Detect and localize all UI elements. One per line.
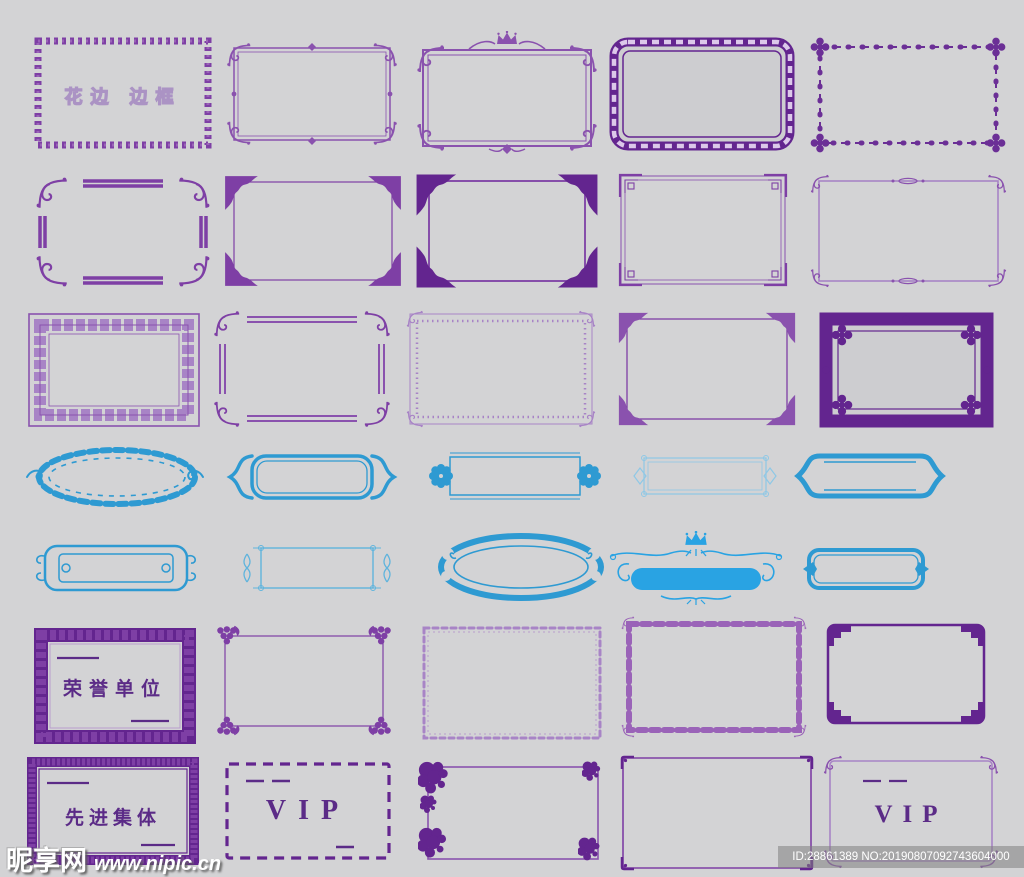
- petite-ornament-border-graphic: [807, 172, 1010, 290]
- corner-flourish-icon: [811, 175, 829, 193]
- corner-flourish-icon: [407, 311, 423, 327]
- frame-crown-ornate: [413, 30, 601, 156]
- leaf-corner-icon: [225, 176, 258, 210]
- grunge-corner-border-graphic: [414, 757, 610, 867]
- frame-dashed-vip: VIP: [218, 755, 398, 867]
- lace-border-asset-sheet: 花边 边框: [0, 0, 1024, 877]
- image-id-watermark: ID:28861389 NO:20190807092743604000: [778, 846, 1024, 868]
- frame-loop-chain: [414, 620, 610, 745]
- nipic-logo-text: 昵享网: [6, 839, 87, 877]
- cloud-scroll-plaque-graphic: [33, 536, 199, 600]
- flourish-side-banner-graphic: [233, 535, 401, 601]
- beaded-border-graphic: [404, 308, 598, 430]
- bold-bracket-banner-graphic: [794, 448, 946, 504]
- frame-label: 荣誉单位: [33, 674, 197, 701]
- meander-border-graphic: [25, 310, 203, 430]
- plaque-diamond-side: [801, 543, 931, 595]
- banner-flourish-side: [233, 535, 401, 601]
- banner-laurel-wreath: [25, 443, 205, 511]
- stepped-corner-border-graphic: [821, 620, 991, 728]
- corner-flourish-icon: [227, 43, 250, 66]
- bold-leaf-border-graphic: [414, 172, 600, 290]
- plaque-cloud-scroll: [33, 536, 199, 600]
- crown-icon: [497, 31, 517, 44]
- grape-corner-border-graphic: [209, 618, 399, 743]
- frame-beaded-border: [404, 308, 598, 430]
- fine-line-banner-graphic: [624, 445, 786, 507]
- frame-heavy-ornate: [817, 310, 996, 430]
- frame-label: VIP: [218, 795, 398, 827]
- rosette-icon: [577, 464, 601, 488]
- frame-scroll-pattern: [617, 616, 811, 738]
- dotted-floral-border-graphic: [806, 33, 1010, 157]
- frame-chain-pattern: 花边 边框: [33, 36, 213, 150]
- gapped-double-line-border-graphic: [211, 308, 393, 430]
- diamond-side-plaque-graphic: [801, 543, 931, 595]
- crown-swirl-banner-graphic: [601, 530, 791, 606]
- frame-grape-corner: [209, 618, 399, 743]
- flourish-bar-border-graphic: [33, 174, 213, 290]
- banner-bold-bracket: [794, 448, 946, 504]
- banner-crown-swirl: [601, 530, 791, 606]
- flower-cluster-icon: [811, 38, 830, 57]
- banner-curly-bracket: [222, 446, 402, 508]
- scroll-pattern-border-graphic: [617, 616, 811, 738]
- plaque-cloud-scallop-oval: [436, 532, 606, 602]
- frame-stepped-corner: [821, 620, 991, 728]
- side-leaf-icon: [244, 554, 250, 582]
- crown-border-graphic: [413, 30, 601, 156]
- frame-honor-unit: 荣誉单位: [33, 627, 197, 745]
- frame-dotted-floral: [806, 33, 1010, 157]
- wave-band-border-graphic: [608, 36, 796, 152]
- frame-bold-leaf-corner: [414, 172, 600, 290]
- frame-petite-ornament: [807, 172, 1010, 290]
- rosette-icon: [429, 464, 453, 488]
- banner-rosette-end: [424, 443, 606, 509]
- loop-chain-border-graphic: [414, 620, 610, 745]
- frame-meander-band: [25, 310, 203, 430]
- frame-label: 花边 边框: [33, 83, 213, 109]
- nipic-site-watermark: 昵享网 www.nipic.cn: [6, 839, 221, 877]
- frame-leaf-corner: [221, 172, 405, 290]
- flourish-border-graphic: [222, 38, 402, 150]
- grunge-blob-icon: [417, 762, 448, 794]
- greek-key-border-graphic: [611, 170, 795, 290]
- frame-flourish-bar: [33, 174, 213, 290]
- frame-rounded-wave-band: [608, 36, 796, 152]
- nipic-url-text: www.nipic.cn: [94, 853, 221, 876]
- corner-flourish-icon: [824, 756, 842, 774]
- leaf-corner-border-graphic: [221, 172, 405, 290]
- frame-greek-key-corner: [611, 170, 795, 290]
- frame-grunge-corner: [414, 757, 610, 867]
- banner-fine-line: [624, 445, 786, 507]
- heavy-ornate-border-graphic: [817, 310, 996, 430]
- corner-flourish-icon: [37, 178, 67, 208]
- frame-label: VIP: [821, 801, 1001, 829]
- curly-bracket-banner-graphic: [222, 446, 402, 508]
- frame-label: 先进集体: [25, 803, 201, 830]
- cloud-oval-graphic: [436, 532, 606, 602]
- frame-floral-spray-corner: [614, 308, 800, 430]
- rosette-banner-graphic: [424, 443, 606, 509]
- greek-key-corner-icon: [620, 175, 642, 197]
- grape-icon: [217, 626, 239, 644]
- leaf-corner-icon: [619, 313, 648, 343]
- laurel-wreath-graphic: [25, 443, 205, 511]
- frame-flourish-double-line: [222, 38, 402, 150]
- corner-flourish-icon: [214, 311, 239, 336]
- floral-spray-border-graphic: [614, 308, 800, 430]
- frame-gapped-double-line: [211, 308, 393, 430]
- crown-icon: [685, 531, 706, 545]
- image-id-text: ID:28861389 NO:20190807092743604000: [792, 851, 1009, 863]
